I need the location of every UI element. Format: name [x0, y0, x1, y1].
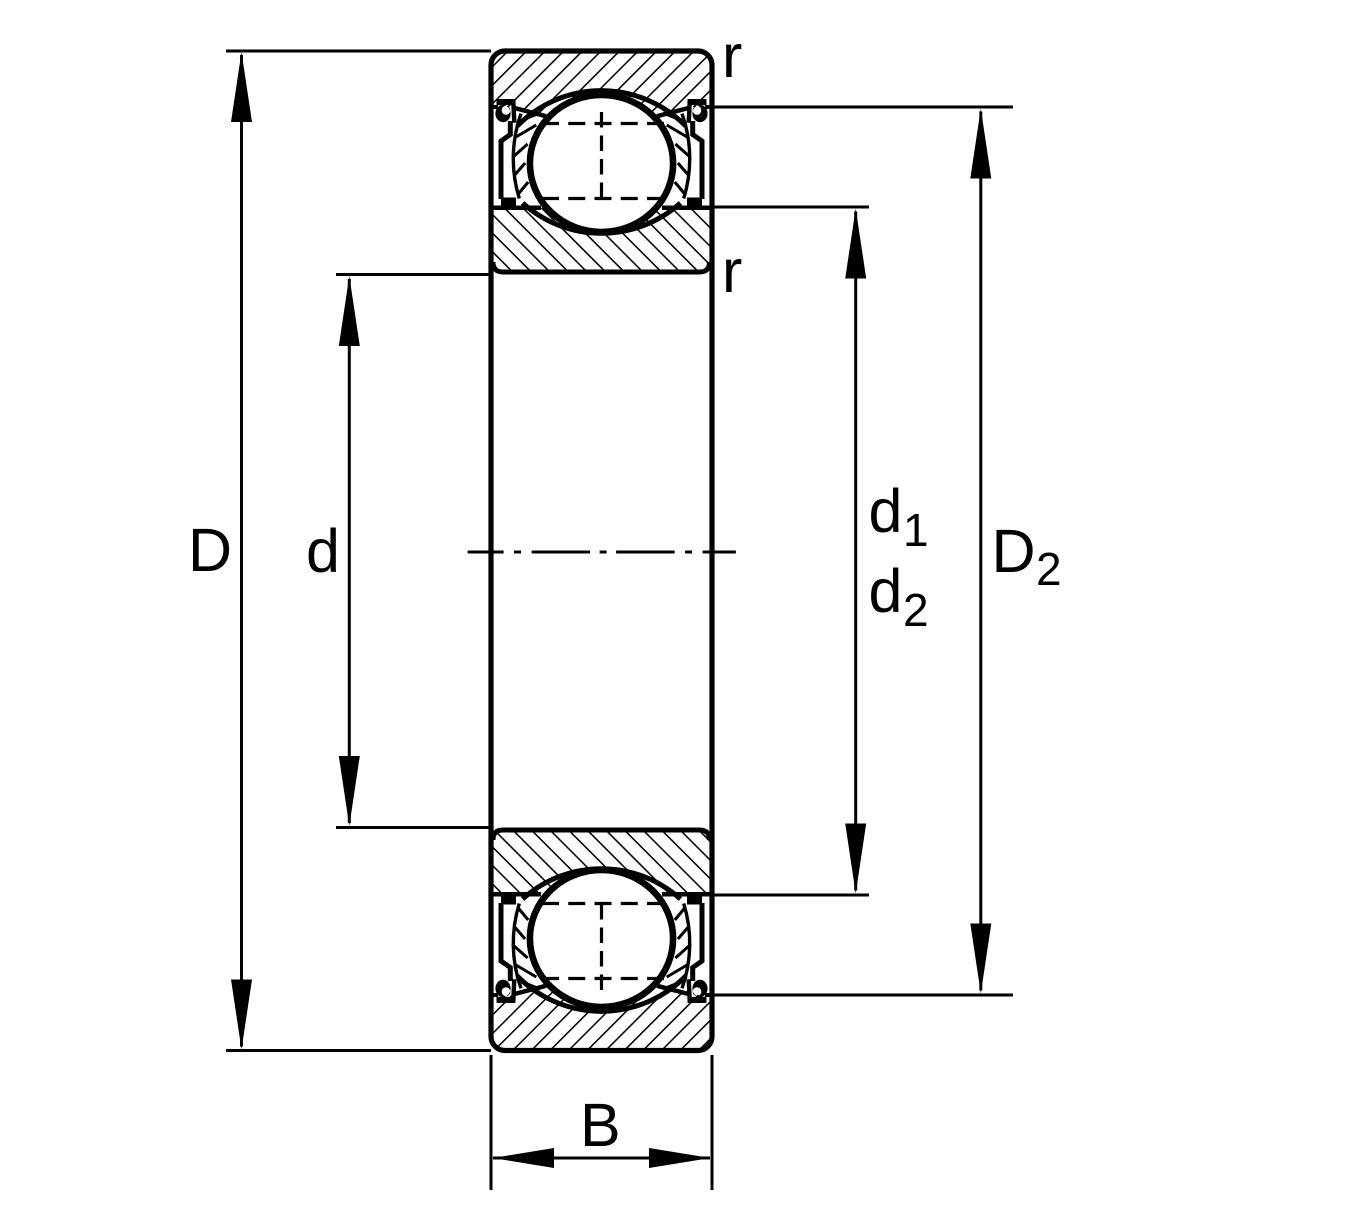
svg-text:B: B: [580, 1091, 621, 1159]
svg-text:d: d: [869, 477, 903, 545]
svg-text:1: 1: [903, 504, 929, 556]
svg-text:d: d: [869, 557, 903, 625]
svg-text:D: D: [188, 516, 232, 584]
svg-text:2: 2: [903, 584, 929, 636]
svg-text:r: r: [722, 237, 742, 305]
svg-text:D: D: [992, 517, 1036, 585]
svg-text:d: d: [306, 517, 340, 585]
svg-text:2: 2: [1036, 543, 1062, 595]
svg-text:r: r: [722, 22, 742, 90]
